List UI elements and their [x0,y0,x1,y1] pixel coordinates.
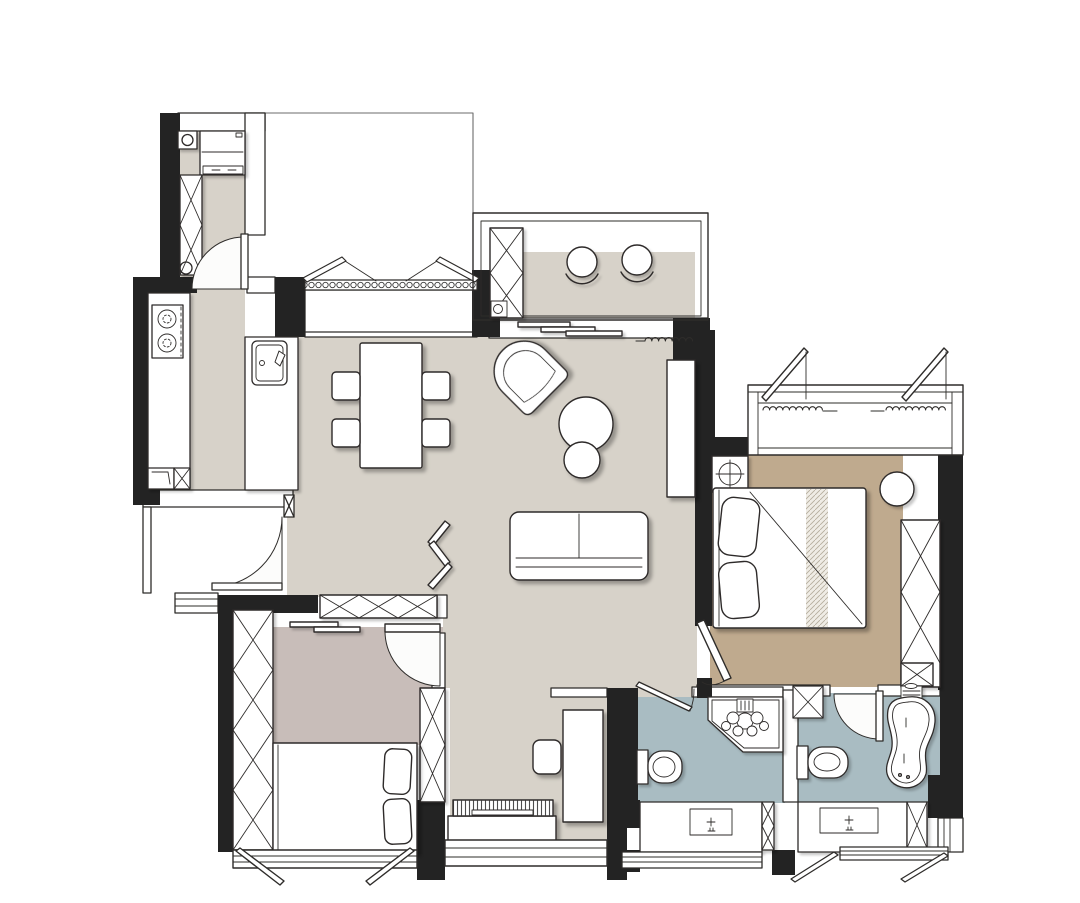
wall [928,775,940,818]
floor-plan-drawing [0,0,1080,903]
utility-door-leaf [241,234,248,289]
hall-cabinet [180,175,202,275]
wall [607,688,627,880]
shower-spray [747,726,757,736]
entry-door-leaf [212,583,282,590]
wardrobe [233,610,273,850]
wall [700,330,715,440]
gas-stove [152,305,183,358]
wall [417,800,445,880]
bedside-table [880,472,914,506]
fridge-hinge [236,133,242,137]
wall [625,688,638,802]
corridor-wall [143,490,293,507]
wall [218,602,233,852]
bay-window [748,385,963,455]
casement-leaf [791,852,838,882]
wall [133,277,197,293]
sliding-door-panel [566,331,622,336]
vestibule-left-band [143,507,151,593]
tub-drain [907,776,910,779]
shower-spray [760,722,769,731]
desk [563,710,603,822]
floor-living-lower [443,595,697,688]
sliding-shelf [290,622,338,627]
wall [275,277,305,337]
casement-arc [406,261,437,281]
water-heater [178,131,197,149]
toilet-tank [637,750,648,784]
floor-balcony [523,252,695,319]
balcony-chair [622,245,652,275]
shower-spray [733,726,743,736]
tv-base [472,810,533,815]
refrigerator-handle-bar [203,166,243,174]
wall [160,113,180,293]
toilet-tank [797,746,808,779]
insect-screen-window [305,280,477,290]
entry-door-swing [212,517,282,587]
wall [700,437,748,457]
wardrobe-column [420,688,445,802]
pillow [383,748,412,794]
wall [772,850,795,875]
bathroom-window [622,852,762,868]
pillow [383,798,412,844]
casement-arc [345,261,376,281]
entry-threshold [175,593,218,613]
tv-wall-panel [667,360,695,497]
cutting-board [148,468,174,489]
desk-chair [533,740,561,774]
sliding-shelf [314,627,360,632]
nook-window [445,840,607,866]
dining-chair [332,372,360,400]
pillow [718,560,761,619]
casement-leaf [303,257,346,282]
dining-chair [422,419,450,447]
dining-chair [332,419,360,447]
dining-window [303,257,479,290]
kitchen-top-wall-piece [247,277,275,293]
dining-chair [422,372,450,400]
wall [697,678,712,698]
nook-partition [551,688,607,697]
dining-table [360,343,422,468]
second-bedroom-door-leaf [385,624,440,632]
wall [940,690,963,818]
sliding-door-panel [518,322,570,327]
pillow [717,496,761,558]
wall [620,800,640,828]
bathroom-window [840,847,948,860]
dining-window-sill [305,290,477,337]
balcony-chair [567,247,597,277]
floor-plan-page [0,0,1080,903]
side-table [564,442,600,478]
wardrobe-end-band [437,595,447,618]
shower-spray [722,722,731,731]
faucet-spout [905,684,917,689]
tub-drain [899,774,902,777]
wall [938,437,963,690]
utility-right-wall [245,113,265,235]
vanity-post [762,802,774,850]
tv-console [448,816,556,842]
bed-runner [806,489,828,627]
ensuite-door-leaf [876,691,883,741]
entry [212,517,282,590]
